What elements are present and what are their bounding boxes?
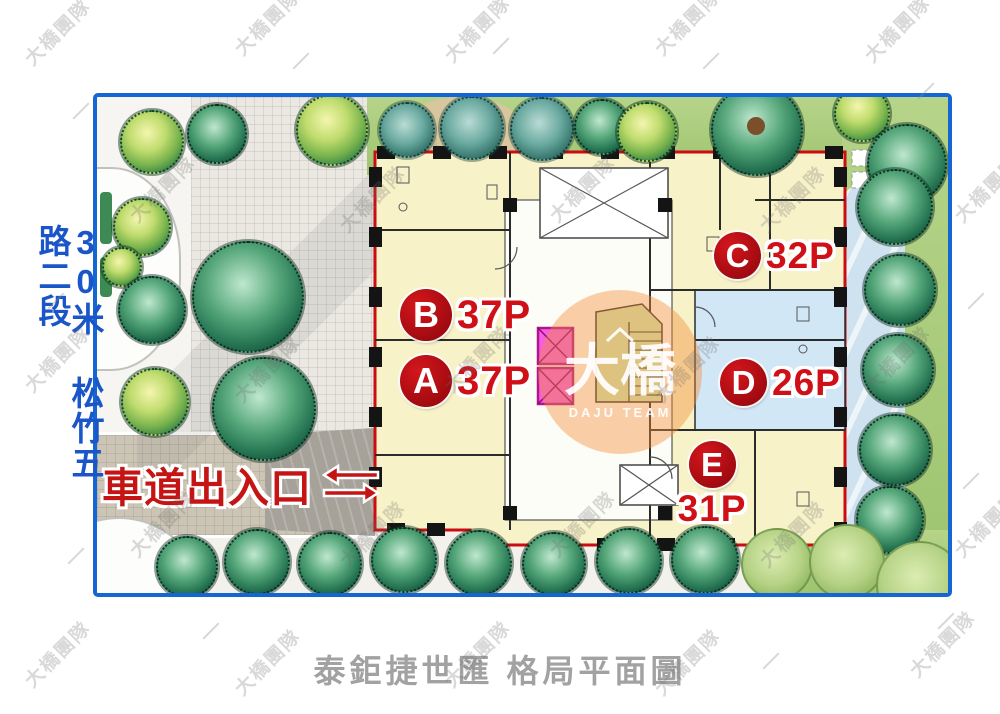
tree	[741, 528, 813, 597]
badge-en-text: DAJU TEAM	[569, 405, 672, 420]
unit-circle-d: D	[720, 359, 767, 406]
tree	[371, 527, 437, 593]
team-watermark-badge: 大橋 DAJU TEAM	[538, 290, 702, 454]
tree	[296, 94, 368, 166]
tree	[671, 526, 739, 594]
tree	[596, 528, 662, 594]
unit-circle-e: E	[689, 441, 736, 488]
unit-label-b: B 37P	[400, 289, 531, 341]
badge-cn-text: 大橋	[564, 343, 676, 399]
tree-trunk	[747, 117, 765, 135]
unit-area-d: 26P	[772, 362, 841, 404]
road-name-label: 30米 松竹五路二段	[36, 224, 102, 512]
watermark-dash	[703, 53, 720, 70]
unit-label-c: C 32P	[714, 232, 835, 279]
tree	[298, 532, 362, 596]
unit-label-d: D 26P	[720, 359, 841, 406]
watermark-dash	[73, 103, 90, 120]
siteplan-frame: B 37P A 37P C 32P D 26P E 31P 車道出入口	[93, 93, 952, 597]
watermark-dash	[968, 293, 985, 310]
watermark-dash	[203, 623, 220, 640]
flyer-canvas: 30米 松竹五路二段	[0, 0, 1000, 714]
tree	[862, 334, 934, 406]
watermark-text: 大橋團隊	[438, 0, 516, 68]
two-way-arrows-icon	[322, 464, 380, 504]
watermark-text: 大橋團隊	[18, 0, 96, 71]
watermark-dash	[963, 473, 980, 490]
watermark-dash	[293, 53, 310, 70]
tree	[156, 536, 218, 597]
tree	[118, 276, 186, 344]
tree	[510, 97, 574, 161]
tree	[224, 529, 290, 595]
tree	[617, 102, 677, 162]
watermark-text: 大橋團隊	[948, 149, 1000, 227]
unit-area-e: 31P	[678, 488, 747, 530]
tree	[446, 530, 512, 596]
tree	[212, 357, 316, 461]
page-caption: 泰鉅捷世匯 格局平面圖	[0, 646, 1000, 692]
tree	[857, 169, 933, 245]
tree	[864, 254, 936, 326]
tree	[440, 96, 504, 160]
tree	[121, 368, 189, 436]
driveway-label-text: 車道出入口	[102, 454, 312, 514]
unit-label-e: E 31P	[667, 441, 757, 530]
tree	[120, 110, 184, 174]
tree	[859, 414, 931, 486]
unit-area-b: 37P	[457, 293, 531, 338]
unit-label-a: A 37P	[400, 355, 531, 407]
unit-circle-c: C	[714, 232, 761, 279]
unit-area-a: 37P	[457, 359, 531, 404]
watermark-text: 大橋團隊	[858, 0, 936, 68]
unit-area-c: 32P	[766, 235, 835, 277]
watermark-text: 大橋團隊	[228, 0, 306, 61]
watermark-dash	[493, 38, 510, 55]
watermark-dash	[938, 613, 955, 630]
tree	[187, 104, 247, 164]
unit-circle-b: B	[400, 289, 452, 341]
unit-circle-a: A	[400, 355, 452, 407]
driveway-label: 車道出入口	[102, 454, 380, 514]
tree	[192, 241, 304, 353]
watermark-text: 大橋團隊	[648, 0, 726, 61]
tree	[379, 102, 435, 158]
tree	[522, 532, 586, 596]
tree	[809, 524, 885, 597]
watermark-dash	[68, 548, 85, 565]
watermark-text: 大橋團隊	[948, 484, 1000, 562]
